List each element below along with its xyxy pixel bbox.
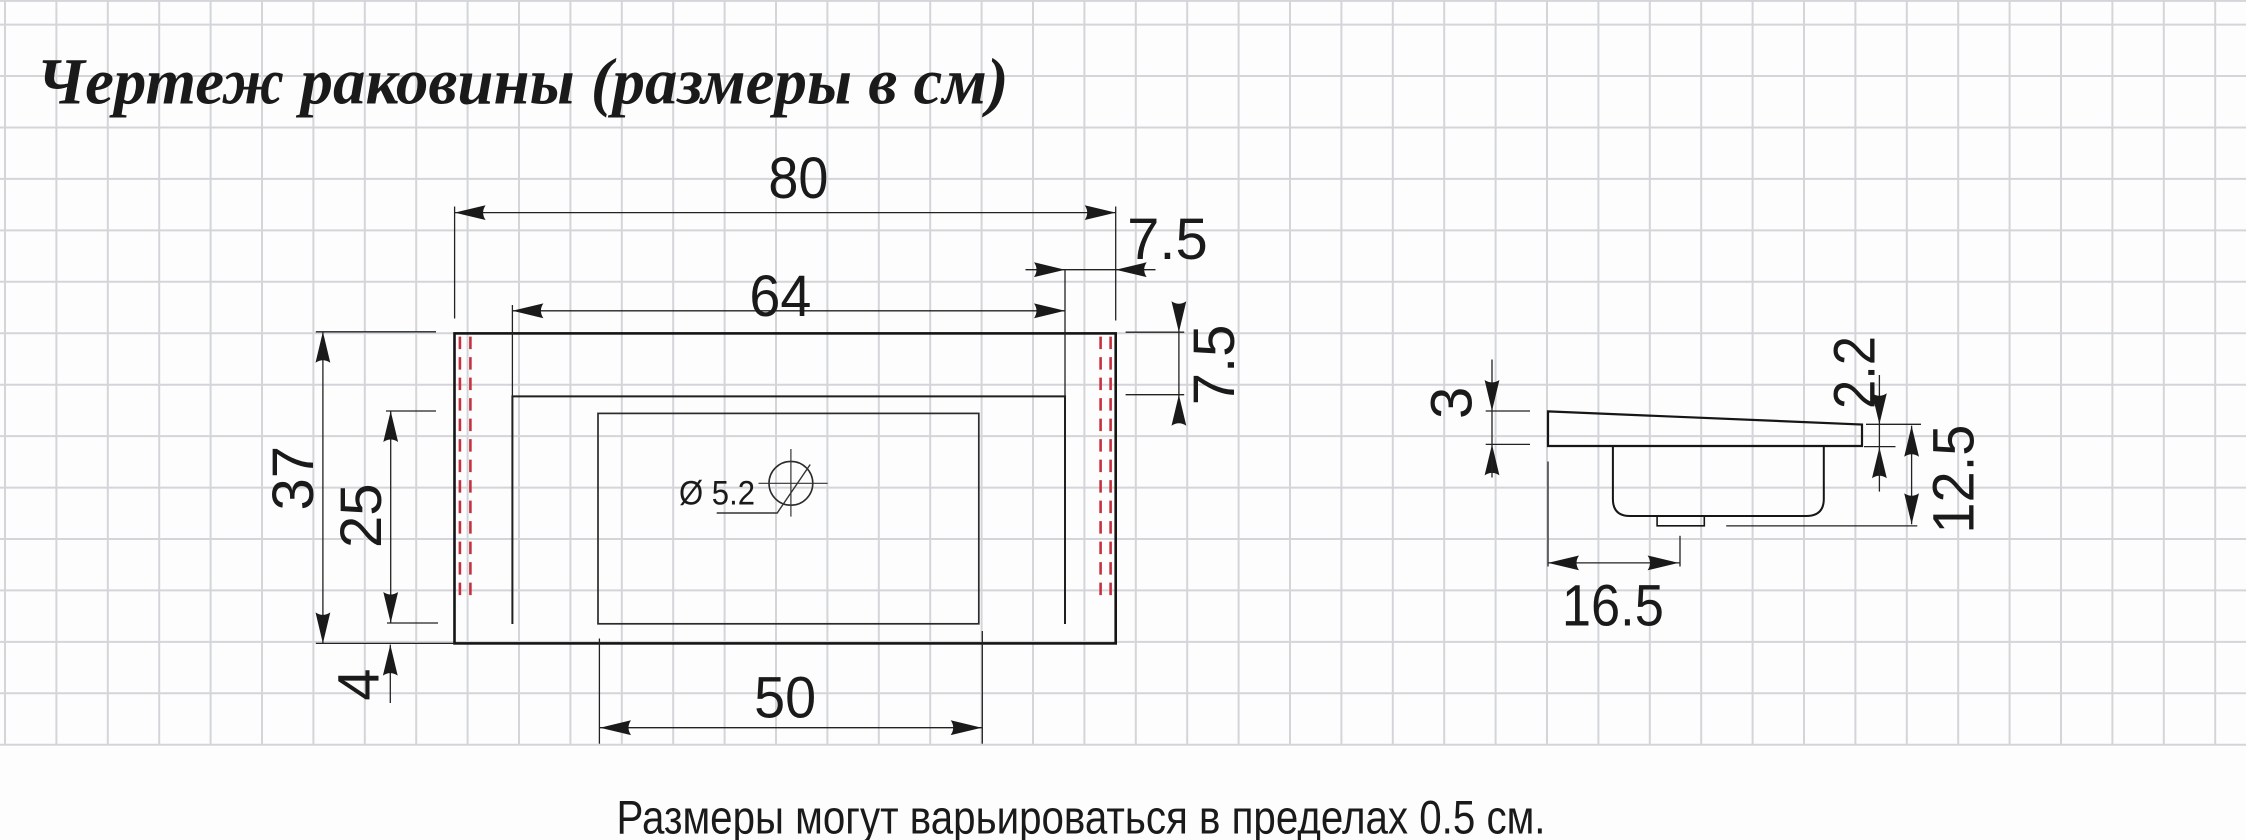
svg-text:Размеры могут варьироваться в: Размеры могут варьироваться в пределах 0…: [617, 791, 1546, 840]
svg-text:4: 4: [327, 668, 392, 700]
svg-text:37: 37: [261, 446, 326, 511]
svg-text:16.5: 16.5: [1562, 574, 1664, 639]
svg-text:3: 3: [1420, 387, 1485, 419]
svg-text:80: 80: [768, 146, 828, 211]
svg-text:12.5: 12.5: [1921, 425, 1986, 534]
svg-text:Чертеж раковины (размеры в см): Чертеж раковины (размеры в см): [37, 46, 1009, 119]
svg-text:50: 50: [754, 666, 816, 731]
svg-text:64: 64: [749, 264, 811, 329]
svg-text:7.5: 7.5: [1127, 207, 1208, 272]
svg-text:7.5: 7.5: [1182, 325, 1247, 406]
svg-text:25: 25: [329, 483, 394, 548]
svg-text:Ø 5.2: Ø 5.2: [679, 475, 755, 513]
svg-text:2.2: 2.2: [1823, 336, 1888, 409]
